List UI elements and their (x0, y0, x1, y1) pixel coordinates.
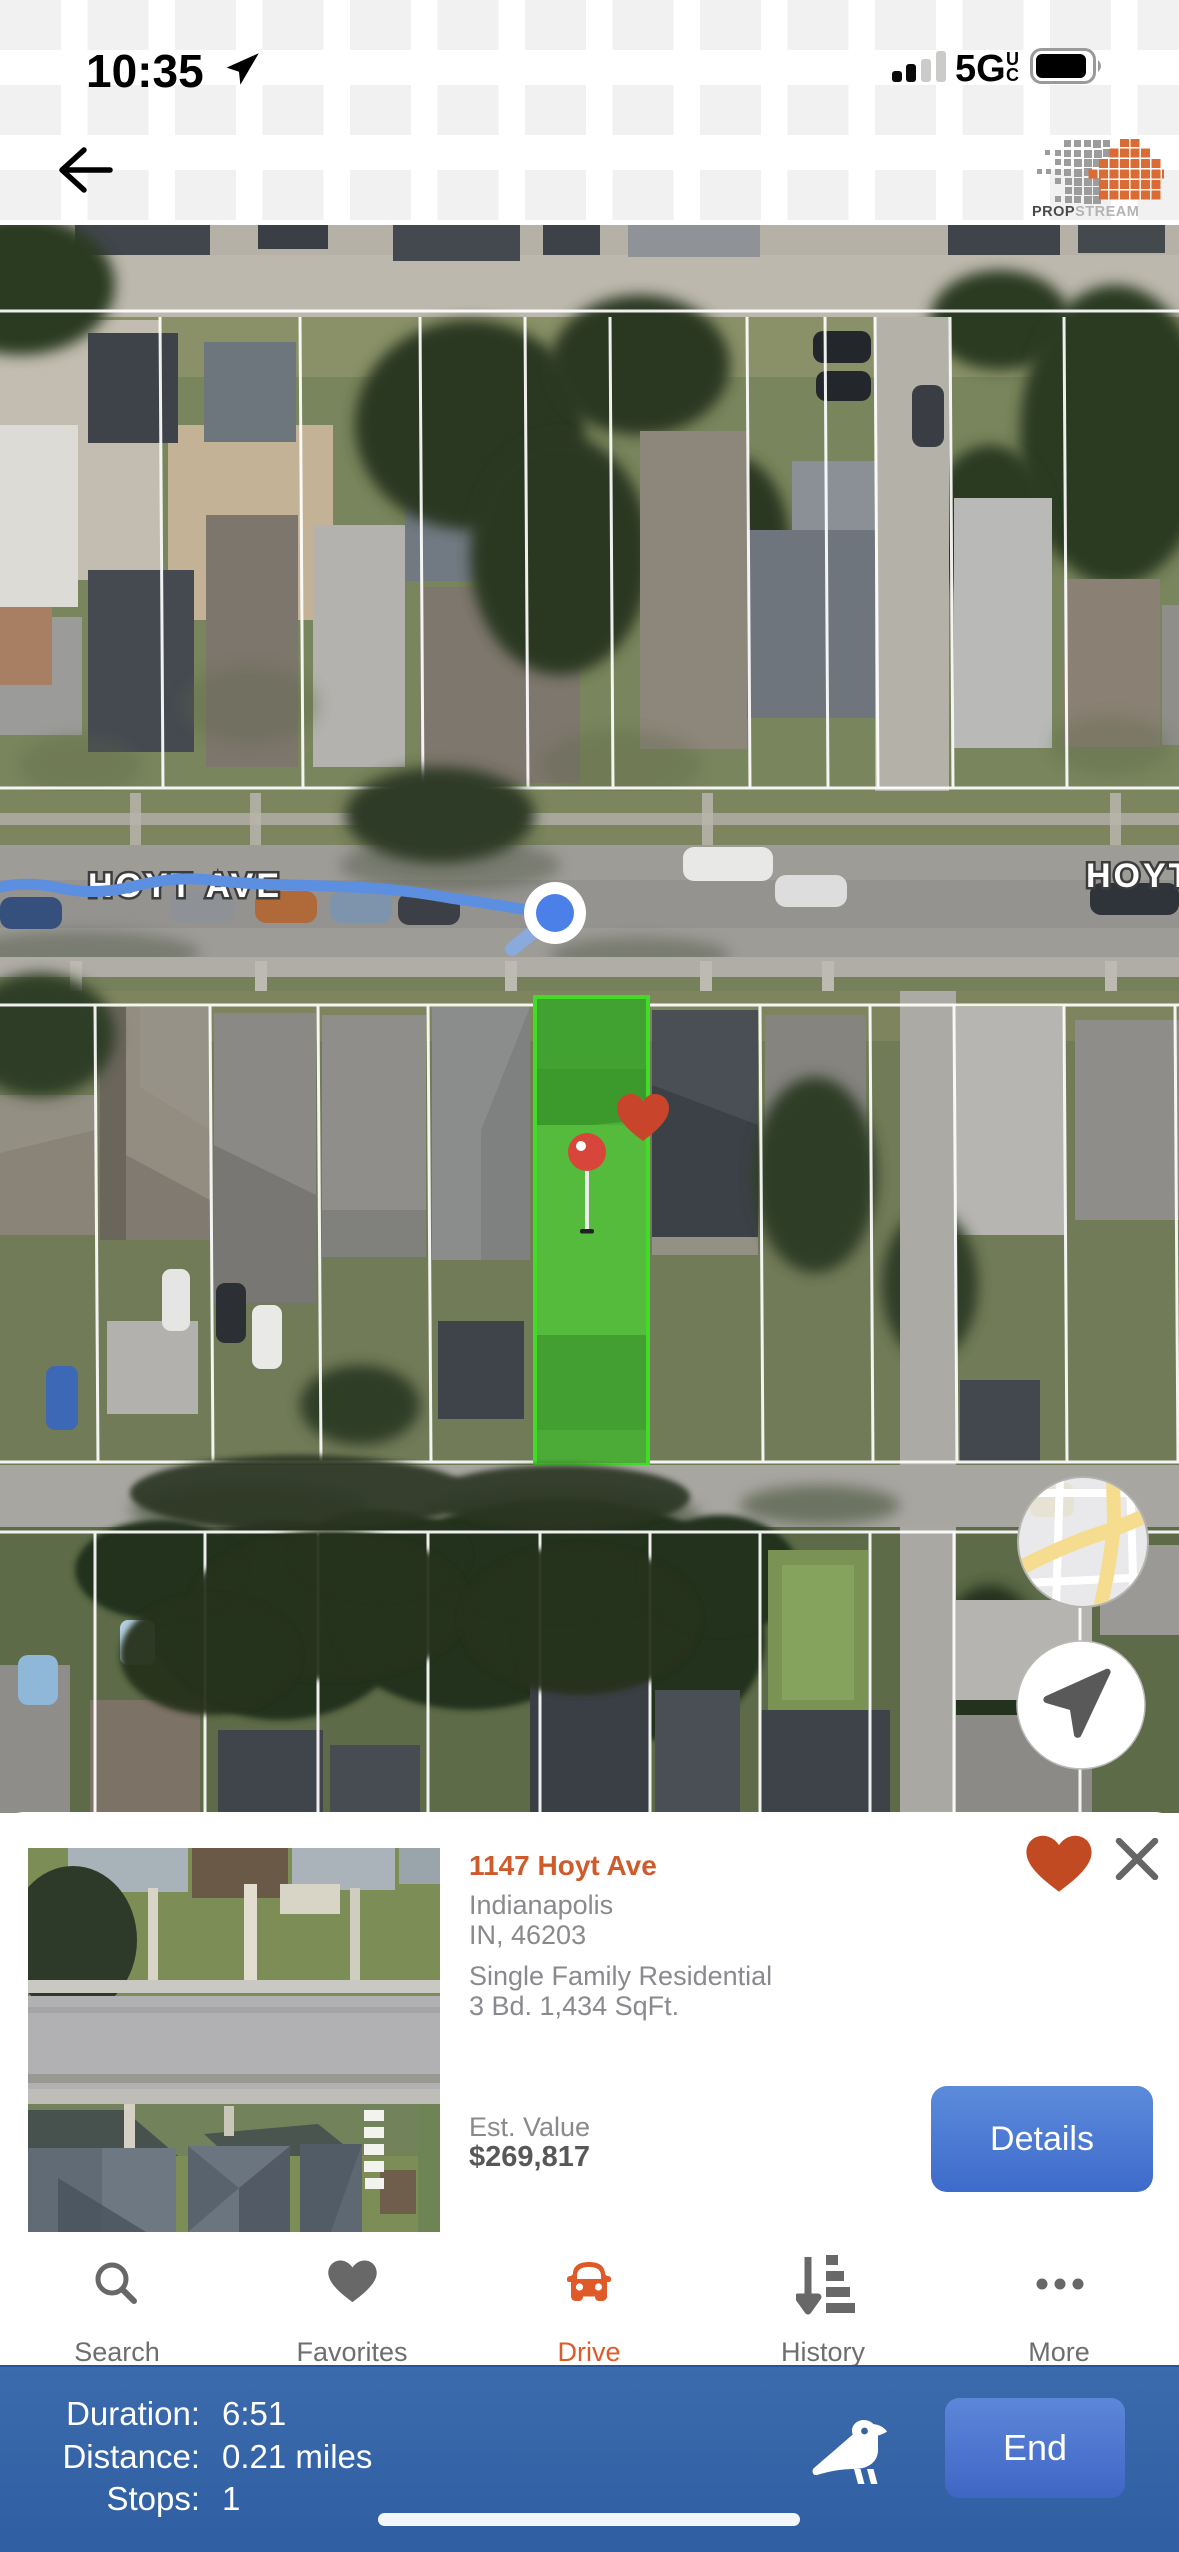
svg-text:PROPSTREAM: PROPSTREAM (1032, 204, 1139, 220)
svg-text:HOYT: HOYT (1086, 857, 1179, 895)
